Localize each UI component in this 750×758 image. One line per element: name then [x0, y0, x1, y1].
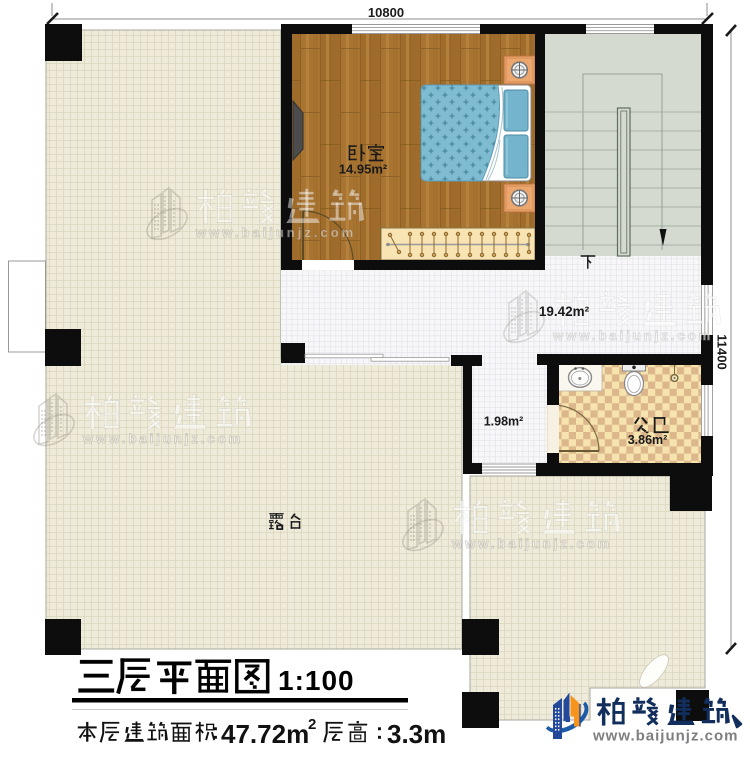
svg-text:3.86m²: 3.86m² — [628, 433, 668, 447]
svg-text:1:100: 1:100 — [278, 665, 355, 696]
svg-text:47.72m: 47.72m — [221, 719, 309, 749]
svg-text:1.98m²: 1.98m² — [484, 415, 524, 429]
svg-text:11400: 11400 — [715, 334, 730, 369]
svg-text:14.95m²: 14.95m² — [339, 162, 388, 177]
svg-text:10800: 10800 — [368, 5, 404, 20]
svg-text:3.3m: 3.3m — [387, 719, 446, 749]
svg-text:www.baijunjz.com: www.baijunjz.com — [592, 728, 738, 745]
svg-text:19.42m²: 19.42m² — [539, 304, 590, 319]
svg-text:2: 2 — [308, 716, 316, 733]
